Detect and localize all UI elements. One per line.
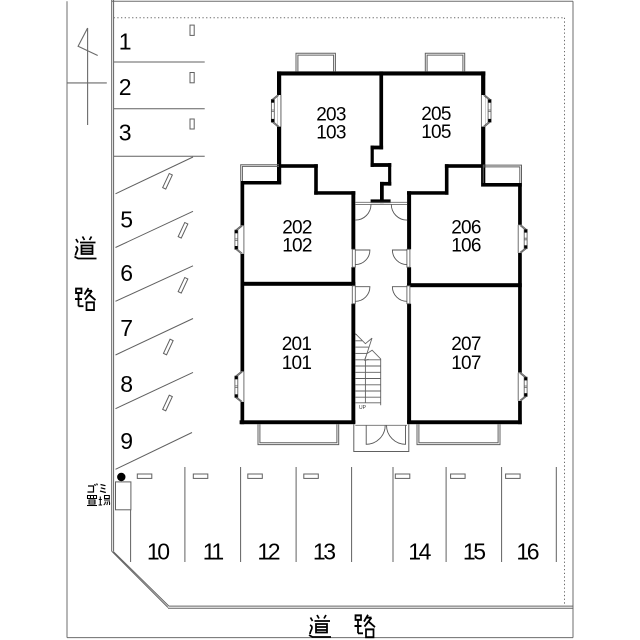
svg-text:13: 13: [313, 539, 335, 565]
svg-text:14: 14: [408, 539, 431, 565]
svg-text:11: 11: [203, 539, 224, 565]
svg-text:103: 103: [316, 123, 346, 144]
svg-text:201: 201: [282, 334, 312, 355]
svg-text:10: 10: [147, 539, 169, 565]
svg-text:105: 105: [421, 122, 451, 143]
svg-text:5: 5: [120, 207, 132, 233]
svg-text:UP: UP: [359, 405, 367, 411]
svg-text:102: 102: [282, 236, 312, 257]
svg-text:2: 2: [119, 74, 131, 100]
svg-text:16: 16: [516, 539, 538, 565]
svg-text:9: 9: [120, 428, 132, 454]
svg-text:8: 8: [120, 371, 132, 397]
svg-text:1: 1: [119, 29, 131, 55]
svg-text:12: 12: [257, 539, 279, 565]
svg-text:15: 15: [463, 539, 485, 565]
svg-text:6: 6: [120, 260, 132, 286]
svg-text:107: 107: [451, 353, 481, 374]
svg-text:207: 207: [451, 334, 481, 355]
svg-text:3: 3: [119, 119, 131, 145]
svg-text:7: 7: [120, 315, 132, 341]
svg-text:106: 106: [451, 236, 481, 257]
svg-text:101: 101: [282, 353, 312, 374]
